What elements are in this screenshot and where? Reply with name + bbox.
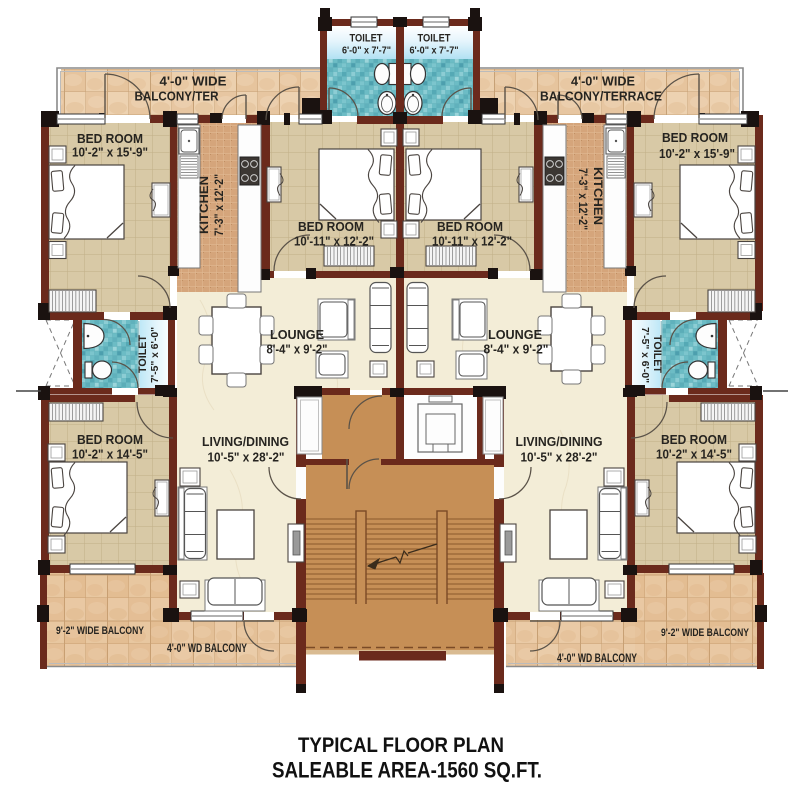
svg-text:10'-11" x 12'-2": 10'-11" x 12'-2" xyxy=(294,235,374,249)
svg-text:TYPICAL FLOOR PLAN: TYPICAL FLOOR PLAN xyxy=(298,733,504,757)
svg-text:7'-5" x 6'-0": 7'-5" x 6'-0" xyxy=(149,327,161,383)
svg-text:4'-0" WD BALCONY: 4'-0" WD BALCONY xyxy=(557,653,637,665)
svg-text:BED ROOM: BED ROOM xyxy=(661,432,727,447)
svg-text:BED ROOM: BED ROOM xyxy=(662,130,728,145)
svg-text:KITCHEN: KITCHEN xyxy=(197,176,211,234)
svg-text:4'-0" WIDE: 4'-0" WIDE xyxy=(160,74,227,89)
svg-text:10'-2" x 15'-9": 10'-2" x 15'-9" xyxy=(72,146,148,160)
svg-text:TOILET: TOILET xyxy=(137,335,149,373)
svg-text:BALCONY/TERRACE: BALCONY/TERRACE xyxy=(540,89,662,104)
svg-text:10'-2" x 14'-5": 10'-2" x 14'-5" xyxy=(656,448,732,462)
svg-text:8'-4" x 9'-2": 8'-4" x 9'-2" xyxy=(267,343,328,357)
svg-text:6'-0" x 7'-7": 6'-0" x 7'-7" xyxy=(342,45,391,57)
svg-text:LIVING/DINING: LIVING/DINING xyxy=(202,434,289,449)
svg-text:10'-2" x 14'-5": 10'-2" x 14'-5" xyxy=(72,448,148,462)
svg-text:4'-0" WIDE: 4'-0" WIDE xyxy=(571,74,635,89)
svg-text:8'-4" x 9'-2": 8'-4" x 9'-2" xyxy=(484,343,549,357)
svg-text:BED ROOM: BED ROOM xyxy=(77,131,143,146)
svg-text:KITCHEN: KITCHEN xyxy=(591,167,605,225)
svg-text:LOUNGE: LOUNGE xyxy=(488,327,542,342)
svg-text:9'-2" WIDE BALCONY: 9'-2" WIDE BALCONY xyxy=(56,625,145,637)
svg-text:7'-3" x 12'-2": 7'-3" x 12'-2" xyxy=(576,168,588,230)
svg-text:SALEABLE AREA-1560 SQ.FT.: SALEABLE AREA-1560 SQ.FT. xyxy=(272,758,542,783)
svg-text:7'-5" x 6'-0": 7'-5" x 6'-0" xyxy=(639,327,651,383)
svg-text:10'-2" x 15'-9": 10'-2" x 15'-9" xyxy=(659,147,735,161)
svg-text:TOILET: TOILET xyxy=(350,33,383,45)
svg-text:TOILET: TOILET xyxy=(418,33,451,45)
svg-text:10'-5" x 28'-2": 10'-5" x 28'-2" xyxy=(521,451,598,465)
svg-text:BALCONY/TER: BALCONY/TER xyxy=(135,89,220,104)
svg-text:LOUNGE: LOUNGE xyxy=(270,327,324,342)
svg-text:TOILET: TOILET xyxy=(651,335,663,373)
svg-text:BED ROOM: BED ROOM xyxy=(437,219,503,234)
svg-text:7'-3" x 12'-2": 7'-3" x 12'-2" xyxy=(214,174,226,236)
svg-text:BED ROOM: BED ROOM xyxy=(298,219,364,234)
svg-text:10'-5" x 28'-2": 10'-5" x 28'-2" xyxy=(208,451,285,465)
svg-text:LIVING/DINING: LIVING/DINING xyxy=(516,434,603,449)
svg-text:9'-2" WIDE BALCONY: 9'-2" WIDE BALCONY xyxy=(661,627,750,639)
svg-text:6'-0" x 7'-7": 6'-0" x 7'-7" xyxy=(410,45,459,57)
svg-text:BED ROOM: BED ROOM xyxy=(77,432,143,447)
svg-text:10'-11" x 12'-2": 10'-11" x 12'-2" xyxy=(432,235,512,249)
svg-text:4'-0" WD BALCONY: 4'-0" WD BALCONY xyxy=(167,643,247,655)
